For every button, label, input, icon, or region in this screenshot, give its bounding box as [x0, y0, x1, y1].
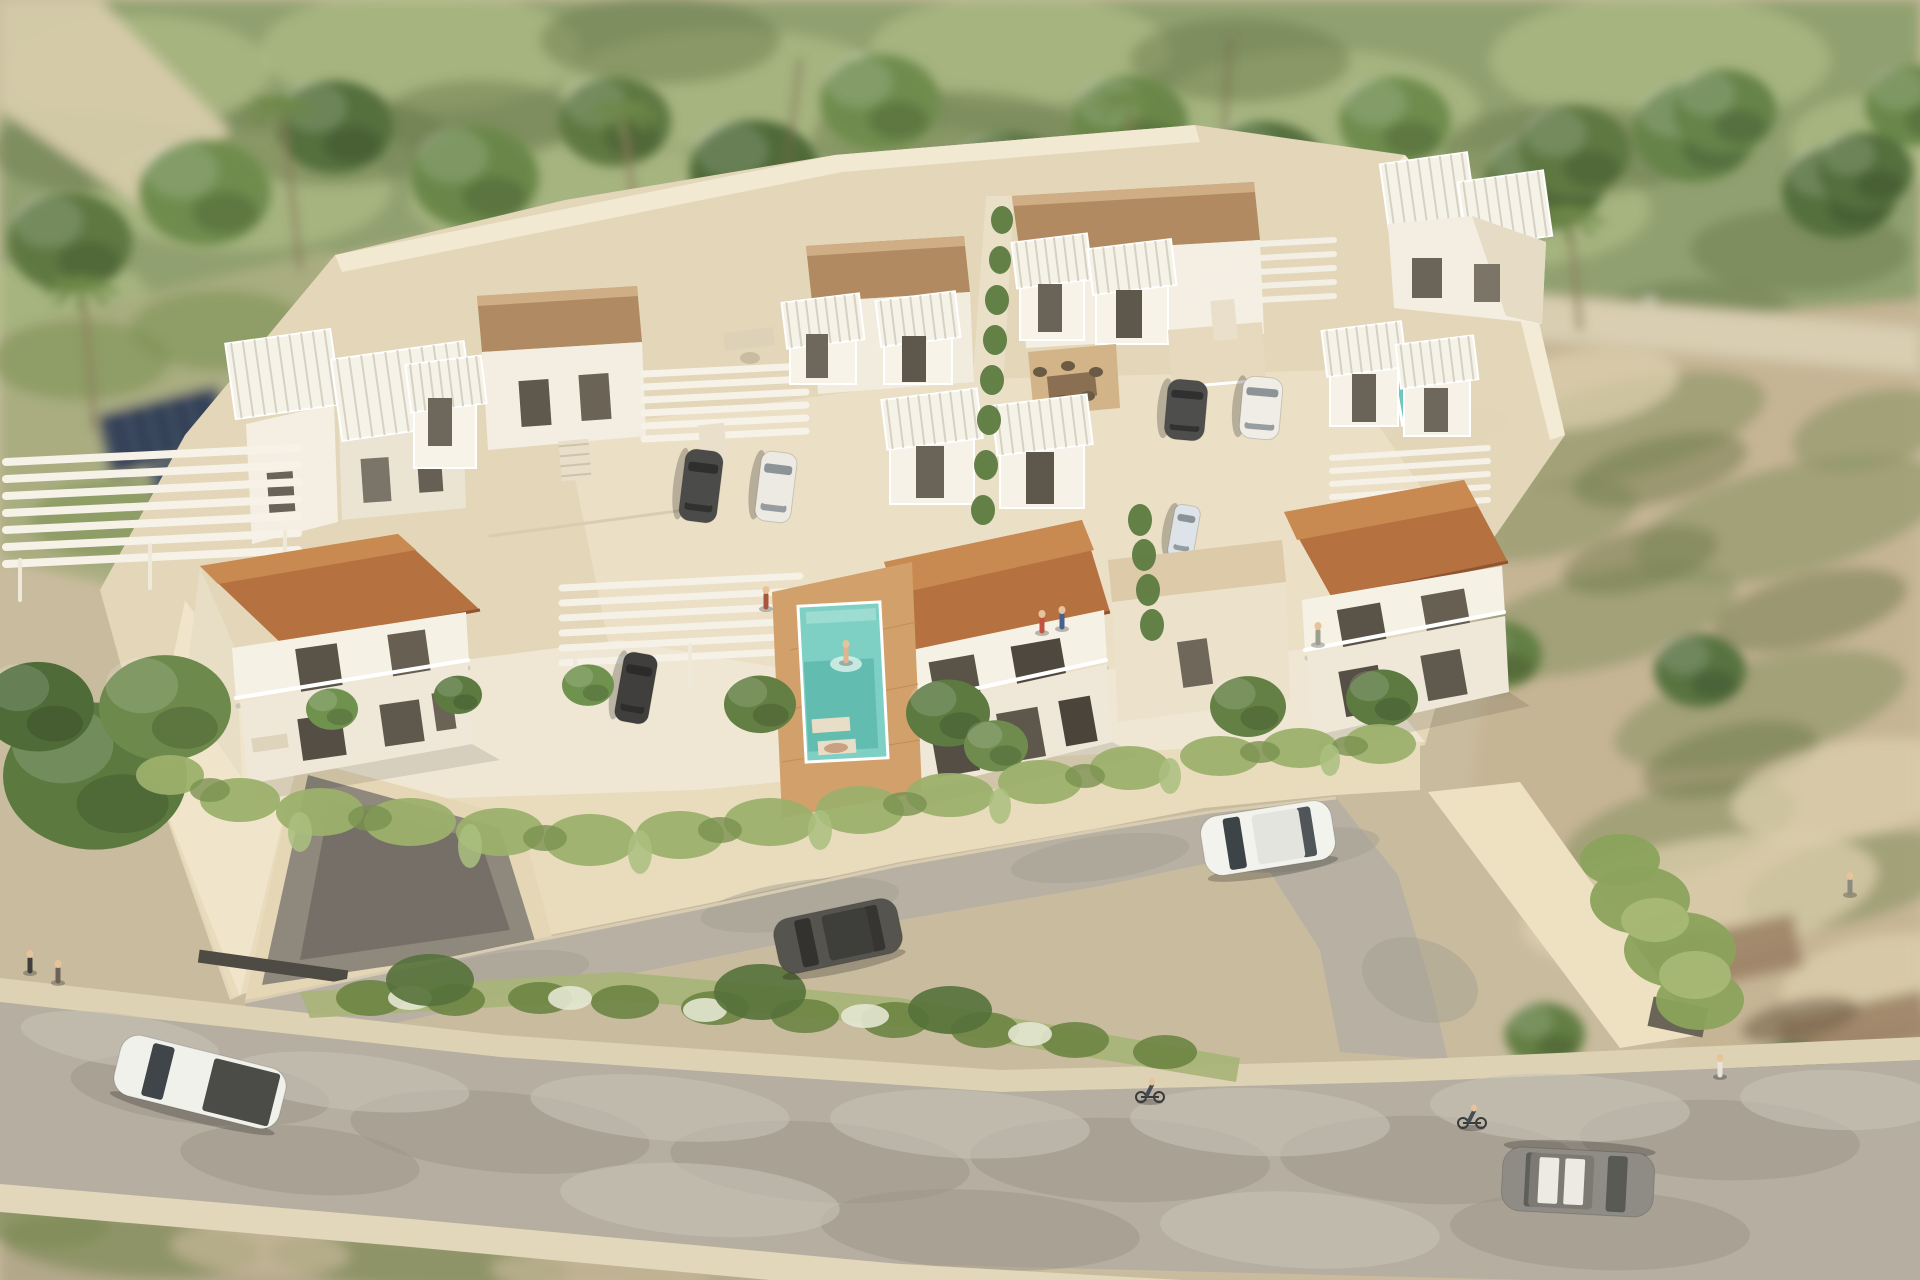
window-opening — [902, 336, 926, 382]
slatted-roof-panel — [1321, 321, 1406, 376]
wall-vines-hanging — [1320, 744, 1340, 776]
wall-vines-hanging — [989, 788, 1011, 824]
window-opening — [1420, 649, 1467, 701]
tree — [1654, 634, 1746, 708]
window-opening — [1474, 264, 1500, 302]
window-opening — [916, 446, 944, 498]
wall-vines-hanging — [458, 824, 482, 868]
render-canvas — [0, 0, 1920, 1280]
wall-vines-hanging — [808, 810, 832, 850]
wall-end-vegetation — [1580, 834, 1660, 886]
strip-bushes — [1041, 1022, 1109, 1058]
wall-vines-dark — [1065, 764, 1105, 788]
window-opening — [518, 379, 551, 427]
strip-bushes-flowering — [841, 1004, 889, 1028]
cypress-hedge — [1140, 609, 1164, 641]
villa-body — [482, 342, 646, 450]
white-specks — [1645, 297, 1655, 303]
window-opening — [379, 699, 424, 746]
wall-vines — [724, 798, 816, 846]
window-opening — [1026, 452, 1054, 504]
wall-vines-dark — [190, 778, 230, 802]
garden-tree — [434, 676, 482, 714]
terrace-table — [740, 352, 760, 364]
dining-chairs — [1089, 367, 1103, 377]
tree — [277, 81, 393, 174]
strip-bushes — [591, 985, 659, 1019]
window-opening — [1412, 258, 1442, 298]
driving-van-gray — [1500, 1137, 1656, 1218]
window-opening — [1424, 388, 1448, 432]
wall-vines — [1090, 746, 1170, 790]
large-corner-tree — [99, 655, 231, 761]
strip-bushes-flowering — [548, 986, 592, 1010]
garden-tree — [306, 688, 358, 730]
garden-tree — [724, 676, 796, 734]
meadow-dark-patches — [540, 0, 780, 84]
architectural-rendering — [0, 0, 1920, 1280]
window-opening — [578, 373, 611, 421]
strip-bushes — [1133, 1035, 1197, 1069]
tree — [820, 54, 940, 150]
dining-chairs — [1061, 361, 1075, 371]
parked-car-white — [1230, 375, 1284, 441]
cypress-hedge — [974, 450, 998, 480]
slatted-roof-panel — [1011, 234, 1092, 289]
garden-tree — [562, 664, 614, 706]
window-opening — [1352, 374, 1376, 422]
stairs — [1210, 299, 1237, 341]
wall-vines-hanging — [288, 812, 312, 852]
tree — [1673, 70, 1777, 153]
cypress-hedge — [977, 405, 1001, 435]
cypress-hedge — [991, 206, 1013, 234]
cypress-hedge — [980, 365, 1004, 395]
garden-tree — [1346, 670, 1418, 728]
window-opening — [360, 457, 391, 503]
window-opening — [806, 334, 828, 378]
strip-bushes-flowering — [1008, 1022, 1052, 1046]
pool-deep-end — [804, 658, 879, 752]
tree — [8, 193, 132, 292]
window-opening — [1116, 290, 1142, 338]
dining-chairs — [1033, 367, 1047, 377]
cypress-hedge — [1132, 539, 1156, 571]
sun-lounger — [812, 717, 851, 734]
wall-vines-hanging — [628, 830, 652, 874]
slatted-roof-panel — [1396, 335, 1479, 388]
parked-suv-dark — [1155, 378, 1209, 442]
garden-tree — [1210, 676, 1286, 737]
strip-bushes-large — [908, 986, 992, 1034]
tree — [559, 77, 671, 167]
cypress-hedge — [1136, 574, 1160, 606]
wall-end-vegetation-light — [1621, 898, 1689, 942]
cypress-hedge — [985, 285, 1009, 315]
cypress-hedge — [1128, 504, 1152, 536]
strip-bushes-large — [386, 954, 474, 1006]
wall-vines-dark — [883, 792, 927, 816]
cypress-hedge — [983, 325, 1007, 355]
cypress-hedge — [989, 246, 1011, 274]
tree — [1817, 132, 1913, 209]
wall-vines-hanging — [1159, 758, 1181, 794]
tree — [139, 140, 271, 246]
cypress-hedge — [971, 495, 995, 525]
wall-vines-dark — [1240, 741, 1280, 763]
window-opening — [1038, 284, 1062, 332]
window-opening — [428, 398, 452, 446]
slatted-roof-panel — [1088, 239, 1177, 295]
door-opening — [1177, 638, 1213, 688]
wall-vines-dark — [523, 825, 567, 851]
window-opening — [267, 471, 296, 513]
wall-vines-dark — [698, 817, 742, 843]
wall-end-vegetation-light — [1659, 951, 1731, 999]
wall-vines-dark — [348, 805, 392, 831]
